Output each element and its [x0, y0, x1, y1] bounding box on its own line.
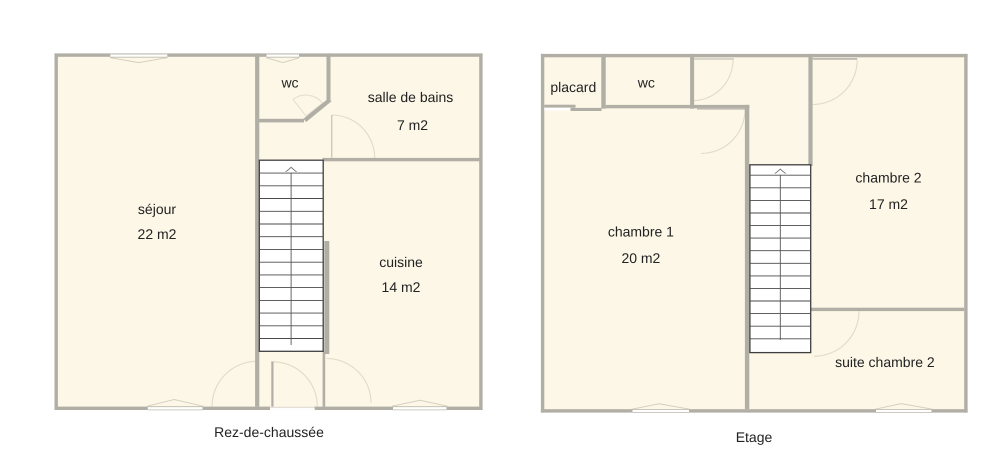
- svg-text:wc: wc: [280, 75, 298, 91]
- svg-text:20 m2: 20 m2: [621, 250, 660, 266]
- svg-text:suite chambre 2: suite chambre 2: [835, 354, 935, 370]
- svg-text:17 m2: 17 m2: [869, 196, 908, 212]
- svg-text:Etage: Etage: [736, 429, 773, 445]
- svg-text:14 m2: 14 m2: [382, 279, 421, 295]
- svg-text:wc: wc: [637, 75, 655, 91]
- svg-text:placard: placard: [550, 79, 596, 95]
- svg-text:cuisine: cuisine: [379, 254, 423, 270]
- svg-text:Rez-de-chaussée: Rez-de-chaussée: [214, 424, 324, 440]
- svg-text:7 m2: 7 m2: [397, 117, 428, 133]
- svg-text:salle de bains: salle de bains: [368, 89, 454, 105]
- svg-text:22 m2: 22 m2: [138, 226, 177, 242]
- svg-text:chambre 2: chambre 2: [855, 170, 921, 186]
- svg-text:chambre 1: chambre 1: [608, 224, 674, 240]
- svg-text:séjour: séjour: [138, 201, 176, 217]
